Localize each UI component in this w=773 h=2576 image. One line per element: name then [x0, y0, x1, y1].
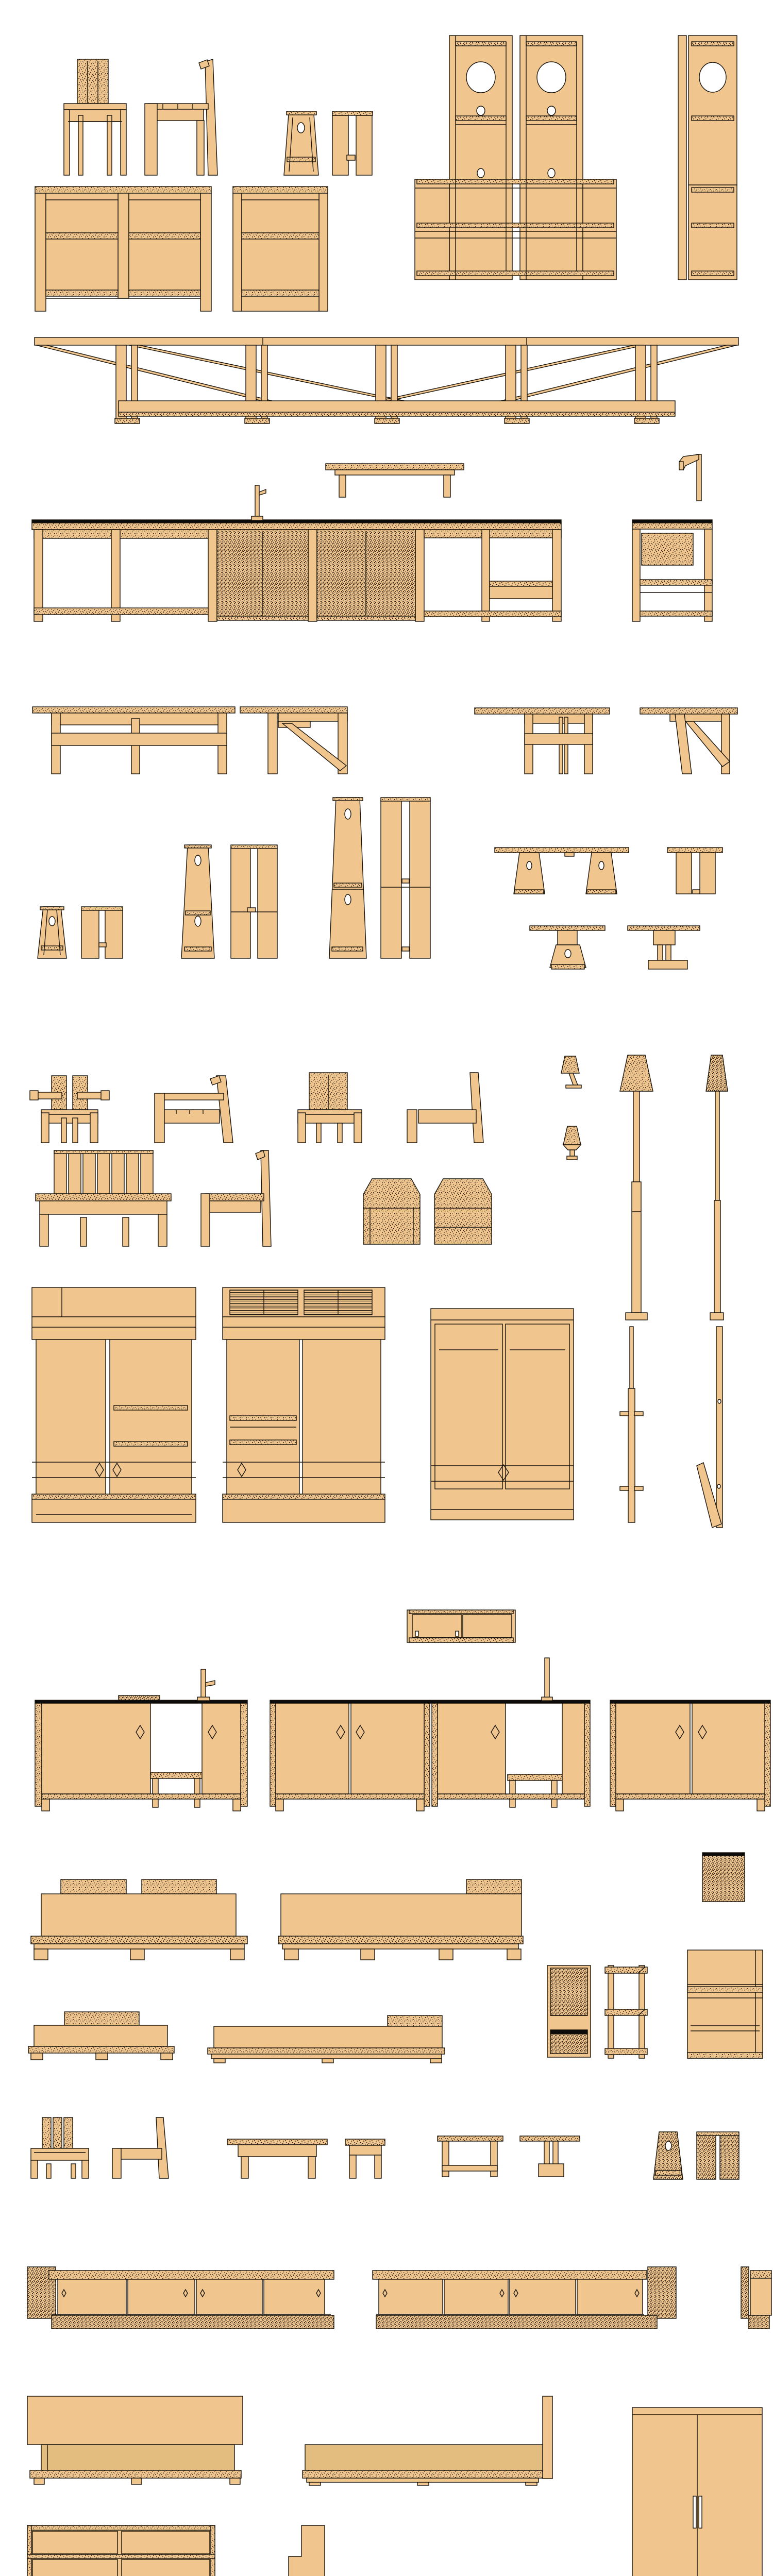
- wardrobe-two-door-tall: [632, 2408, 762, 2576]
- trestle-medium-front: [181, 845, 214, 958]
- bed-large-front: [27, 2396, 243, 2484]
- pouf-2: [434, 1179, 492, 1244]
- osb-box: [702, 1853, 745, 1902]
- shelf-unit-front: [547, 1965, 591, 2057]
- wardrobe-plain: [431, 1309, 574, 1520]
- counter-4: [610, 1700, 770, 1811]
- sideboard-two-door: [35, 187, 211, 311]
- trestle-tall-front: [329, 798, 366, 958]
- step-stool-front: [284, 111, 318, 175]
- wardrobe-grille-top: [223, 1287, 385, 1522]
- fridge-cabinet: [687, 1950, 763, 2058]
- sideboard-long-1: [27, 2267, 334, 2329]
- wardrobe-top-cabinet: [32, 1287, 196, 1522]
- chest-of-drawers: [27, 2526, 215, 2576]
- furniture-elevation-sheet: [0, 0, 773, 2576]
- sideboard-long-2: [373, 2267, 676, 2329]
- sideboard-one-door: [233, 187, 328, 311]
- sheet-container: [0, 0, 773, 2576]
- pouf-1: [363, 1179, 420, 1244]
- wall-cabinet-sliding: [407, 1610, 515, 1642]
